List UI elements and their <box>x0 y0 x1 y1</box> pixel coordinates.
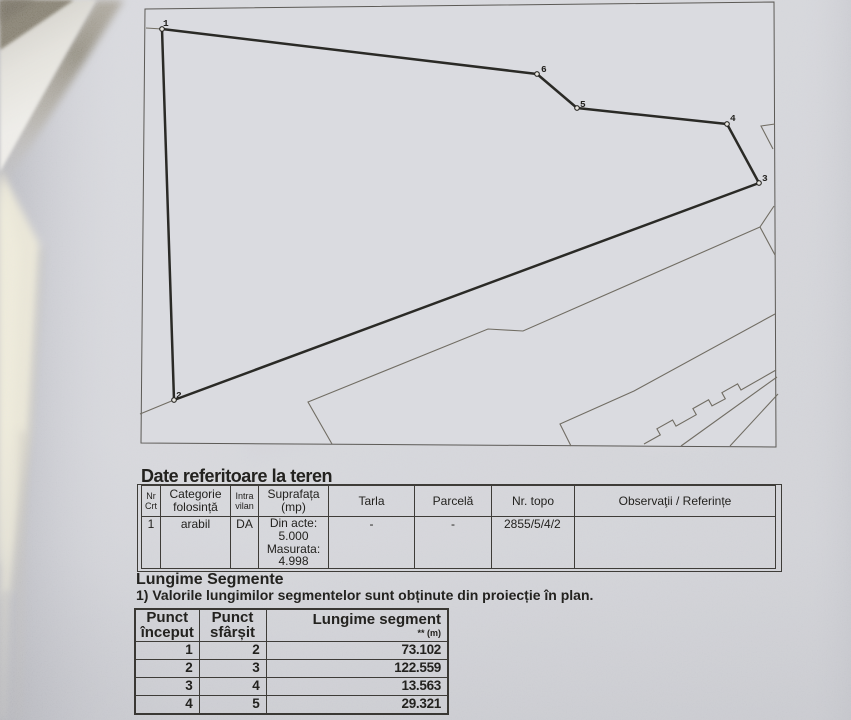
svg-text:5: 5 <box>580 99 586 110</box>
svg-text:1: 1 <box>163 18 169 29</box>
svg-text:6: 6 <box>541 64 547 75</box>
svg-text:4: 4 <box>730 113 736 124</box>
svg-text:3: 3 <box>762 173 768 184</box>
svg-text:2: 2 <box>176 390 182 401</box>
